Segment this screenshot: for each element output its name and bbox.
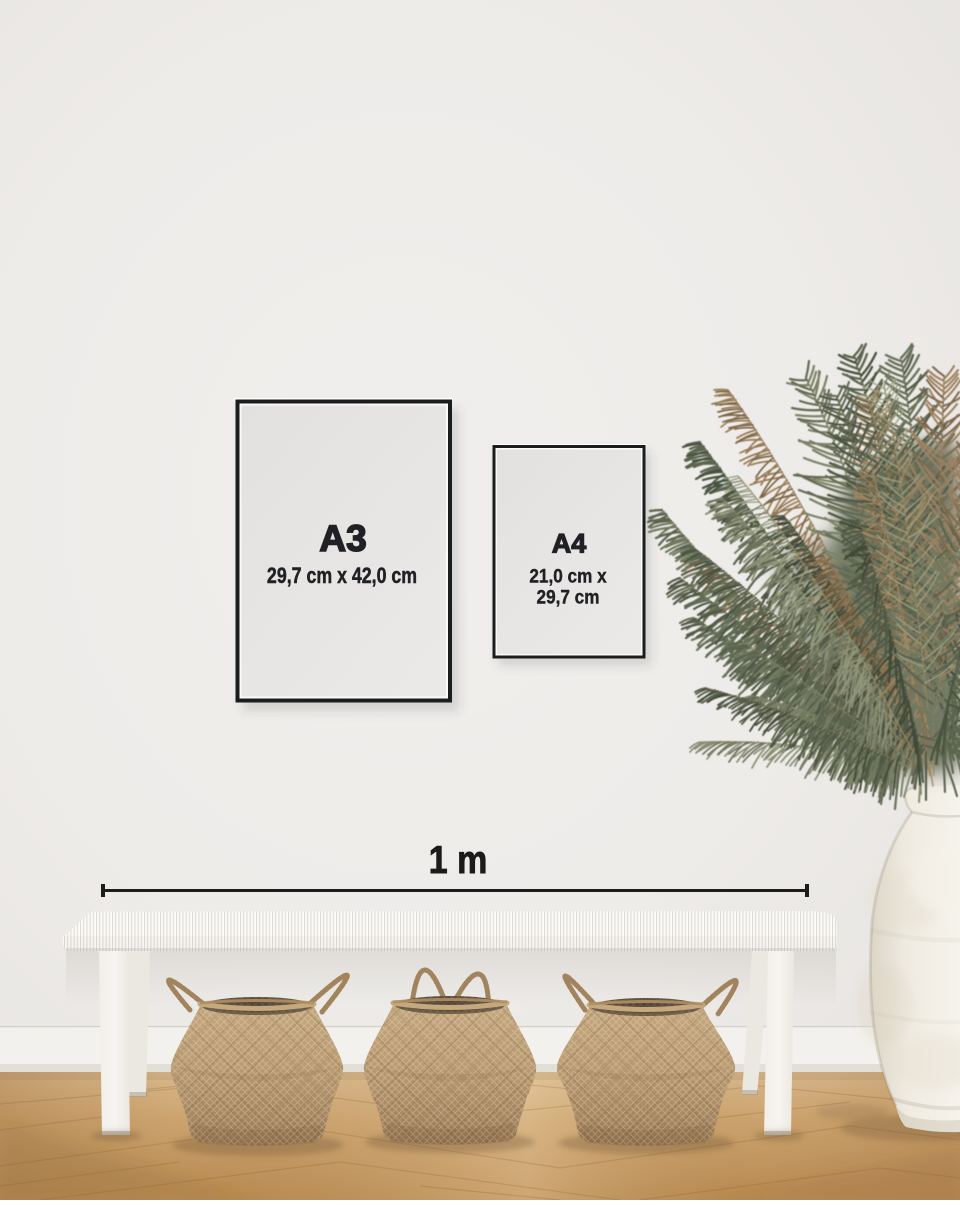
svg-text:A3: A3	[319, 518, 366, 559]
svg-text:29,7 cm: 29,7 cm	[537, 585, 600, 607]
svg-text:21,0 cm x: 21,0 cm x	[529, 564, 607, 586]
svg-text:A4: A4	[552, 529, 587, 559]
svg-text:1 m: 1 m	[429, 838, 487, 882]
svg-text:29,7 cm x 42,0 cm: 29,7 cm x 42,0 cm	[267, 564, 417, 588]
